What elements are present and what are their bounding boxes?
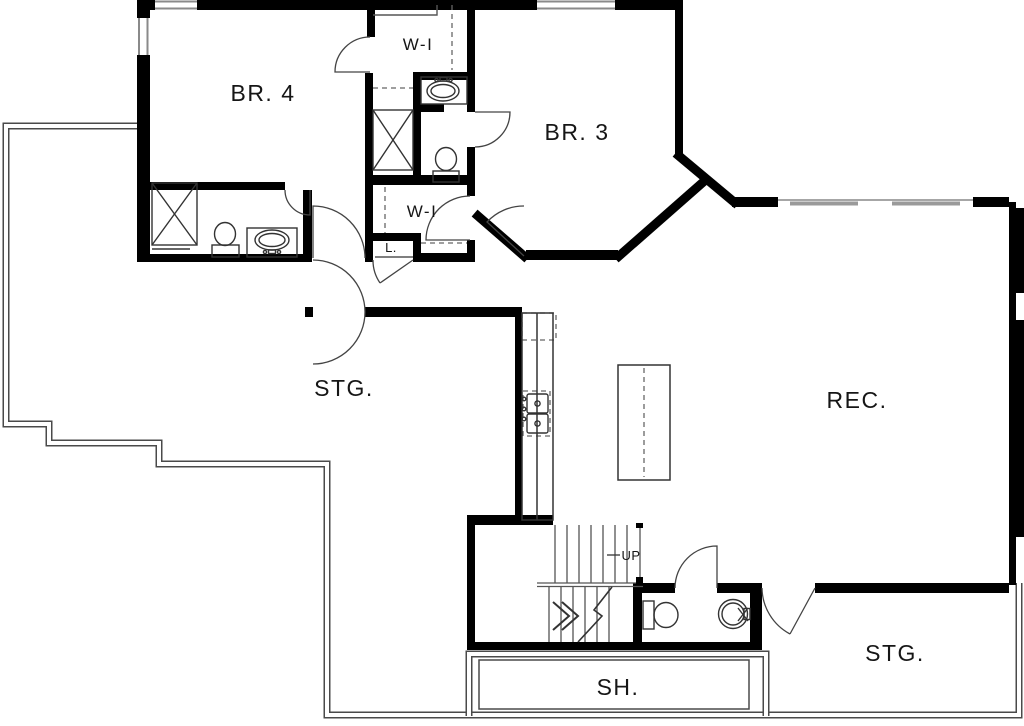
vanity-sink-icon-upper	[421, 77, 467, 104]
room-labels: BR. 4 W-I BR. 3 W-I L. STG. REC. UP SH. …	[230, 35, 924, 700]
unfinished-storage-walls	[6, 126, 1019, 716]
door-arc-hall-double	[313, 260, 365, 364]
room-label-stg-left: STG.	[314, 375, 374, 401]
stairs	[537, 523, 643, 642]
stairs-up-label: UP	[621, 548, 640, 563]
kitchen	[522, 313, 670, 520]
shower-icon-br4	[152, 183, 197, 249]
room-label-br3: BR. 3	[544, 119, 609, 145]
kitchen-upper-cabinet	[522, 313, 556, 340]
room-label-br4: BR. 4	[230, 80, 295, 106]
floor-plan: BR. 4 W-I BR. 3 W-I L. STG. REC. UP SH. …	[0, 0, 1024, 726]
kitchen-sink-icon	[522, 394, 548, 433]
door-arc-br4-entry	[313, 206, 365, 258]
vanity-sink-icon-br4	[247, 228, 297, 257]
door-arc-stg-right	[762, 588, 815, 634]
door-arc-lower-bath	[675, 546, 717, 588]
door-arc-wi-top	[335, 37, 370, 72]
shower-icon-upper	[373, 110, 413, 170]
room-label-linen: L.	[385, 240, 397, 255]
room-label-sh: SH.	[597, 674, 640, 700]
room-label-wi-mid: W-I	[407, 202, 438, 221]
room-label-rec: REC.	[827, 387, 888, 413]
room-label-wi-top: W-I	[403, 35, 434, 54]
window-br3-top	[537, 0, 615, 10]
window-br4-top	[155, 0, 197, 10]
round-sink-icon-lower	[719, 600, 751, 629]
toilet-icon-br4	[212, 223, 239, 258]
door-arc-linen	[373, 260, 413, 283]
room-label-stg-right: STG.	[865, 640, 925, 666]
door-arc-br3-bath	[475, 112, 510, 147]
floor-plan-drawing: BR. 4 W-I BR. 3 W-I L. STG. REC. UP SH. …	[0, 0, 1024, 726]
window-br4-left	[137, 18, 150, 55]
toilet-icon-lower	[643, 601, 678, 629]
stairs-direction-arrow	[553, 602, 578, 630]
window-rec-top	[778, 200, 973, 206]
